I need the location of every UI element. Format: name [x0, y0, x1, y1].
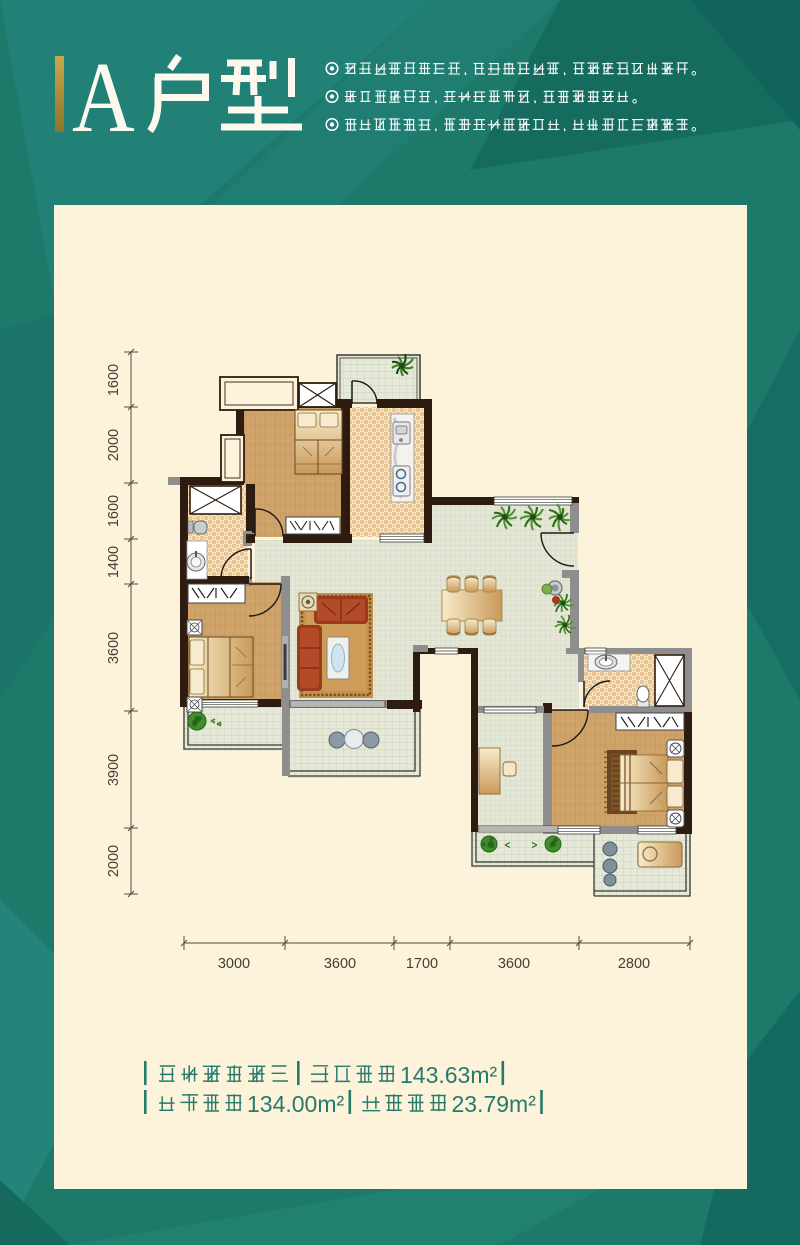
svg-text:3600: 3600: [498, 956, 530, 972]
svg-text:1600: 1600: [106, 364, 122, 396]
svg-text:2000: 2000: [106, 845, 122, 877]
svg-text:2800: 2800: [618, 956, 650, 972]
svg-text:3600: 3600: [324, 956, 356, 972]
svg-text:143.63m²: 143.63m²: [400, 1062, 498, 1088]
svg-text:3900: 3900: [106, 754, 122, 786]
svg-text:A: A: [72, 42, 135, 154]
svg-text:3600: 3600: [106, 632, 122, 664]
svg-text:2000: 2000: [106, 429, 122, 461]
svg-text:23.79m²: 23.79m²: [452, 1091, 537, 1117]
svg-text:1700: 1700: [406, 956, 438, 972]
svg-text:1600: 1600: [106, 495, 122, 527]
svg-text:1400: 1400: [106, 546, 122, 578]
svg-text:134.00m²: 134.00m²: [247, 1091, 345, 1117]
svg-text:3000: 3000: [218, 956, 250, 972]
